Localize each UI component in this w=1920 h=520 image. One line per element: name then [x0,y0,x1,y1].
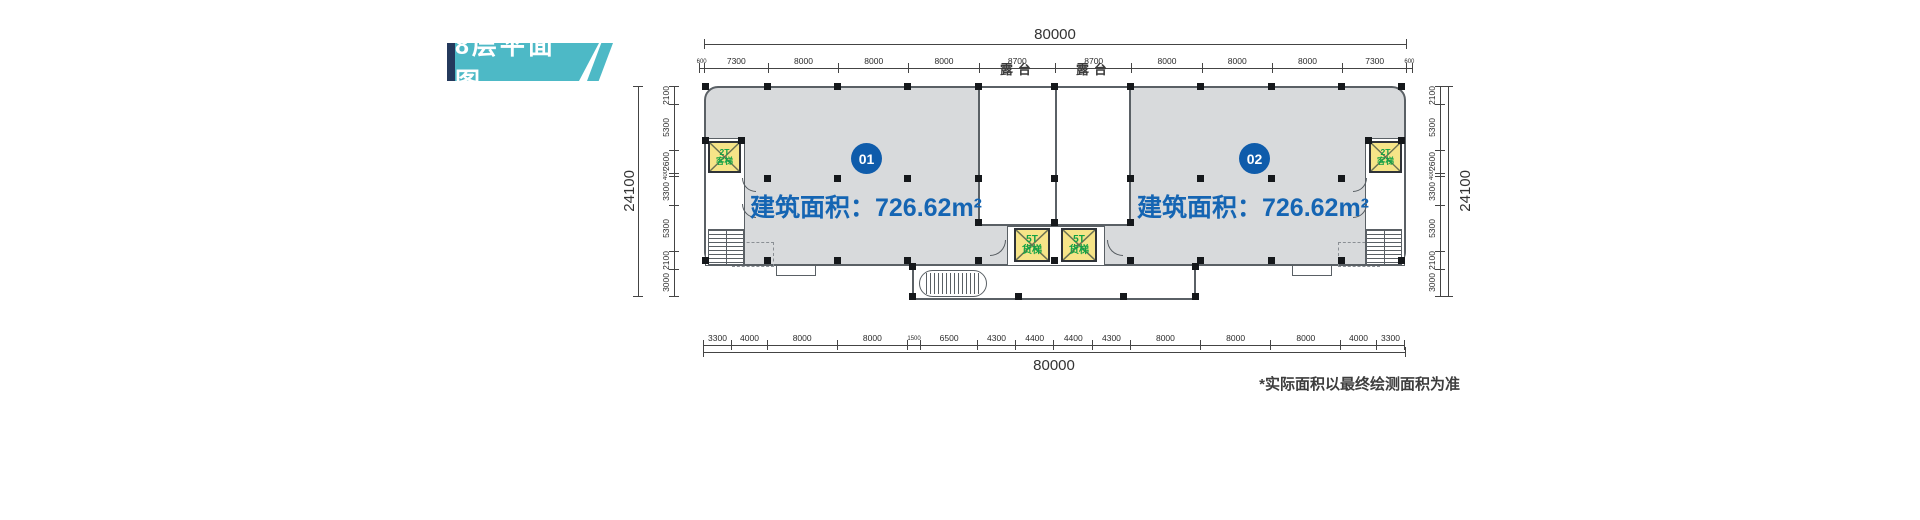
dim-value: 8000 [1298,57,1317,69]
dim-segment: 2100 [658,86,674,104]
dim-value: 2100 [1428,86,1437,105]
dim-value: 4000 [740,334,759,346]
dim-value: 3000 [1428,273,1437,292]
badge-accent-bar [447,43,455,81]
column-marker [1338,175,1345,182]
column-marker [1398,83,1405,90]
elevator-type: 货梯 [1022,245,1042,256]
dim-value: 8000 [1226,334,1245,346]
dim-right-total-text: 24100 [1457,170,1474,212]
dim-bottom-total: 80000 [703,356,1405,374]
dim-segment: 5300 [658,104,674,150]
column-marker [1051,175,1058,182]
dim-value: 4400 [1025,334,1044,346]
dim-left-total-text: 24100 [621,170,638,212]
column-marker [1338,257,1345,264]
dim-left-total: 24100 [620,86,638,296]
dim-value: 2600 [1428,152,1437,171]
dim-value: 8000 [864,57,883,69]
dim-value: 4300 [987,334,1006,346]
dim-segment: 4400 [1054,327,1093,345]
dim-value: 8000 [793,334,812,346]
east-stair [1366,229,1402,265]
dim-segment: 2100 [658,252,674,270]
dim-left-segments: 2100530026004003300530021003000 [658,86,675,296]
column-marker [764,175,771,182]
passenger-elevator-east: 2T 客梯 [1369,141,1402,173]
dim-value: 2100 [662,251,671,270]
column-marker [1120,293,1127,300]
dim-value: 600 [1404,59,1414,68]
dim-segment: 3000 [658,270,674,296]
dim-segment: 8000 [768,50,838,68]
dim-value: 6500 [940,334,959,346]
dim-value: 5300 [662,118,671,137]
column-marker [1192,293,1199,300]
column-marker [1197,83,1204,90]
dim-segment: 3300 [658,177,674,206]
dim-left-total-line [638,86,639,296]
dim-segment: 8000 [1201,327,1271,345]
dim-segment: 6500 [921,327,978,345]
column-marker [1365,137,1372,144]
column-marker [738,137,745,144]
dim-value: 7300 [1365,57,1384,69]
terrace-label-left: 露台 [981,59,1055,78]
dim-segment: 3300 [703,327,732,345]
page-title: 8层平面图 [455,43,581,81]
dim-value: 4000 [1349,334,1368,346]
column-marker [909,263,916,270]
dim-value: 3000 [662,273,671,292]
dim-value: 8000 [1156,334,1175,346]
unit-02-badge: 02 [1239,143,1270,174]
column-marker [975,83,982,90]
dim-value: 2100 [1428,251,1437,270]
elevator-type: 货梯 [1069,245,1089,256]
column-marker [834,175,841,182]
dim-value: 8000 [794,57,813,69]
column-marker [904,83,911,90]
dim-top-total: 80000 [704,26,1406,42]
dim-segment: 8000 [909,50,979,68]
column-marker [1197,175,1204,182]
dim-value: 3300 [662,182,671,201]
column-marker [1268,175,1275,182]
column-marker [1127,257,1134,264]
dim-segment: 2100 [1424,252,1440,270]
dim-value: 2100 [662,86,671,105]
column-marker [1051,83,1058,90]
column-marker [1398,257,1405,264]
column-marker [975,257,982,264]
column-marker [834,257,841,264]
dim-segment: 8000 [839,50,909,68]
dim-value: 5300 [662,219,671,238]
dim-segment: 5300 [658,205,674,251]
dim-value: 1500 [907,336,920,345]
column-marker [1192,263,1199,270]
dim-top-segments: 6007300800080008000870087008000800080007… [699,50,1412,69]
column-marker [1051,219,1058,226]
column-marker [975,175,982,182]
dim-segment: 4000 [732,327,767,345]
dim-segment: 5300 [1424,205,1440,251]
dim-value: 8000 [935,57,954,69]
unit-01-badge: 01 [851,143,882,174]
dim-right-total-line [1448,86,1449,296]
elevator-type: 客梯 [1377,157,1394,166]
dim-segment: 600 [1407,50,1412,68]
column-marker [1127,175,1134,182]
dim-value: 3300 [1428,182,1437,201]
elevator-type: 客梯 [716,157,733,166]
dim-right-total: 24100 [1456,86,1474,296]
unit-01-area: 建筑面积：726.62m² [744,188,988,224]
floor-plan-page: 8层平面图 80000 6007300800080008000870087008… [0,0,1920,520]
dim-segment: 1500 [907,327,920,345]
dim-segment: 8000 [1202,50,1272,68]
dim-bottom-segments: 3300400080008000150065004300440044004300… [703,327,1405,346]
disclaimer-footnote: *实际面积以最终绘测面积为准 [1100,373,1460,394]
column-marker [1268,257,1275,264]
column-marker [702,257,709,264]
title-badge: 8层平面图 [447,43,613,81]
column-marker [1051,257,1058,264]
dim-value: 8000 [1228,57,1247,69]
column-marker [834,83,841,90]
dim-value: 4300 [1102,334,1121,346]
dim-segment: 4400 [1015,327,1054,345]
dim-value: 5300 [1428,219,1437,238]
terrace-label-right: 露台 [1057,59,1131,78]
dim-value: 4400 [1064,334,1083,346]
column-marker [764,83,771,90]
dim-value: 3300 [708,334,727,346]
dim-segment: 8000 [1271,327,1341,345]
dim-bottom-total-line [703,352,1405,353]
dim-segment: 8000 [767,327,837,345]
dim-segment: 4300 [978,327,1016,345]
west-stair [708,229,744,265]
dim-segment: 2100 [1424,86,1440,104]
terrace-block [978,86,1131,226]
dim-value: 8000 [863,334,882,346]
column-marker [1398,137,1405,144]
dim-segment: 5300 [1424,104,1440,150]
unit-02-area: 建筑面积：726.62m² [1131,188,1375,224]
dim-segment: 3000 [1424,270,1440,296]
passenger-elevator-west: 2T 客梯 [708,141,741,173]
dim-segment: 3300 [1424,177,1440,206]
dim-segment: 8000 [1272,50,1342,68]
column-marker [702,137,709,144]
dim-segment: 4300 [1093,327,1131,345]
dim-segment: 8000 [1132,50,1202,68]
column-marker [904,175,911,182]
freight-elevator-1: 5T 货梯 [1014,228,1050,262]
dim-segment: 8000 [837,327,907,345]
dim-segment: 7300 [704,50,768,68]
terrace-divider-wall [1055,88,1057,224]
column-marker [702,83,709,90]
column-marker [1338,83,1345,90]
column-marker [1268,83,1275,90]
column-marker [909,293,916,300]
dim-right-segments: 2100530026004003300530021003000 [1424,86,1441,296]
freight-elevator-2: 5T 货梯 [1061,228,1097,262]
dim-value: 3300 [1381,334,1400,346]
elevator-capacity: 5T [1073,234,1085,245]
dim-value: 8000 [1296,334,1315,346]
dim-value: 7300 [727,57,746,69]
dim-segment: 3300 [1376,327,1405,345]
dim-value: 8000 [1158,57,1177,69]
column-marker [764,257,771,264]
column-marker [1127,83,1134,90]
dim-top-total-line [704,44,1406,45]
dim-segment: 4000 [1341,327,1376,345]
dim-value: 5300 [1428,118,1437,137]
dim-value: 2600 [662,152,671,171]
elevator-capacity: 5T [1026,234,1038,245]
column-marker [1015,293,1022,300]
annex-stair [919,270,987,297]
dim-segment: 8000 [1130,327,1200,345]
dim-segment: 7300 [1343,50,1407,68]
